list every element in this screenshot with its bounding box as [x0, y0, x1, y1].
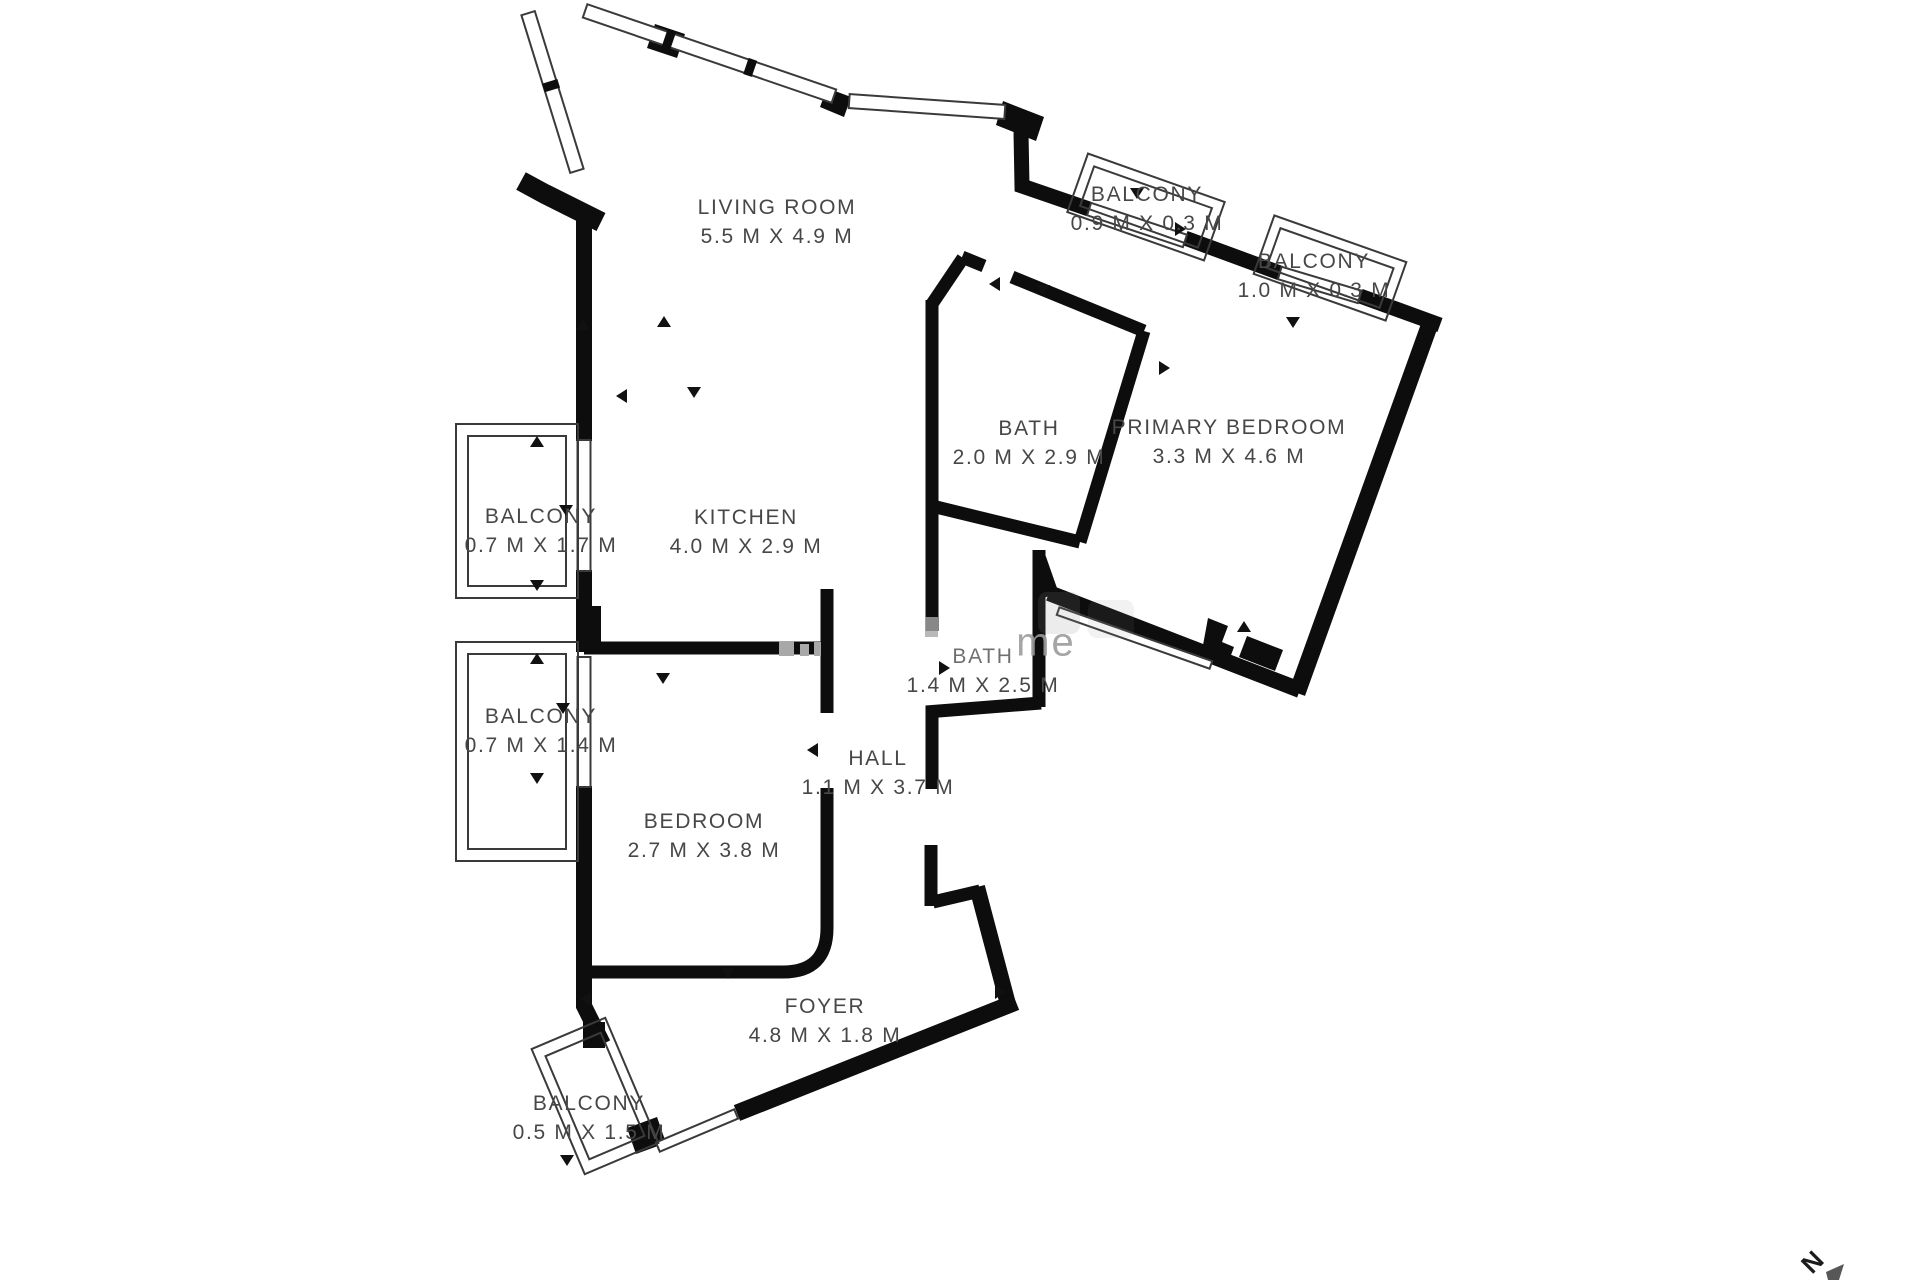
- room-label-balcony-left-2: BALCONY 0.7 M X 1.4 M: [465, 702, 618, 760]
- window-living-left: [521, 11, 585, 173]
- room-label-foyer: FOYER 4.8 M X 1.8 M: [749, 992, 902, 1050]
- room-dims: 4.8 M X 1.8 M: [749, 1021, 902, 1050]
- room-label-bath-1: BATH 2.0 M X 2.9 M: [953, 414, 1106, 472]
- room-dims: 0.7 M X 1.4 M: [465, 731, 618, 760]
- room-name: BALCONY: [1238, 247, 1391, 276]
- room-name: BALCONY: [1071, 180, 1224, 209]
- room-dims: 5.5 M X 4.9 M: [698, 222, 857, 251]
- window-living-top-right: [849, 94, 1006, 119]
- floor-plan-drawing: [0, 0, 1920, 1280]
- room-label-hall: HALL 1.1 M X 3.7 M: [802, 744, 955, 802]
- room-name: BALCONY: [465, 502, 618, 531]
- room-label-living-room: LIVING ROOM 5.5 M X 4.9 M: [698, 193, 857, 251]
- windows: [521, 3, 1362, 1152]
- room-dims: 1.1 M X 3.7 M: [802, 773, 955, 802]
- room-dims: 0.7 M X 1.7 M: [465, 531, 618, 560]
- room-name: BEDROOM: [628, 807, 781, 836]
- room-label-balcony-top-2: BALCONY 1.0 M X 0.3 M: [1238, 247, 1391, 305]
- room-dims: 2.7 M X 3.8 M: [628, 836, 781, 865]
- closet-doors-primary-bedroom: [1057, 607, 1212, 668]
- room-name: BATH: [953, 414, 1106, 443]
- room-name: KITCHEN: [670, 503, 823, 532]
- room-dims: 1.4 M X 2.5 M: [907, 671, 1060, 700]
- window-foyer: [656, 1109, 738, 1151]
- room-label-balcony-bottom: BALCONY 0.5 M X 1.5 M: [513, 1089, 666, 1147]
- walls: [521, 24, 1440, 1154]
- room-label-balcony-top-1: BALCONY 0.9 M X 0.3 M: [1071, 180, 1224, 238]
- room-dims: 1.0 M X 0.3 M: [1238, 276, 1391, 305]
- watermark-text: me: [1016, 621, 1076, 666]
- room-name: BALCONY: [513, 1089, 666, 1118]
- room-label-bedroom: BEDROOM 2.7 M X 3.8 M: [628, 807, 781, 865]
- room-name: FOYER: [749, 992, 902, 1021]
- room-name: LIVING ROOM: [698, 193, 857, 222]
- room-label-balcony-left-1: BALCONY 0.7 M X 1.7 M: [465, 502, 618, 560]
- room-dims: 3.3 M X 4.6 M: [1112, 442, 1347, 471]
- room-name: HALL: [802, 744, 955, 773]
- room-dims: 0.5 M X 1.5 M: [513, 1118, 666, 1147]
- window-living-top: [582, 3, 836, 104]
- room-name: PRIMARY BEDROOM: [1112, 413, 1347, 442]
- room-label-kitchen: KITCHEN 4.0 M X 2.9 M: [670, 503, 823, 561]
- room-label-primary-bedroom: PRIMARY BEDROOM 3.3 M X 4.6 M: [1112, 413, 1347, 471]
- room-dims: 0.9 M X 0.3 M: [1071, 209, 1224, 238]
- room-dims: 4.0 M X 2.9 M: [670, 532, 823, 561]
- floor-plan-canvas: LIVING ROOM 5.5 M X 4.9 M BALCONY 0.9 M …: [0, 0, 1920, 1280]
- room-dims: 2.0 M X 2.9 M: [953, 443, 1106, 472]
- room-name: BALCONY: [465, 702, 618, 731]
